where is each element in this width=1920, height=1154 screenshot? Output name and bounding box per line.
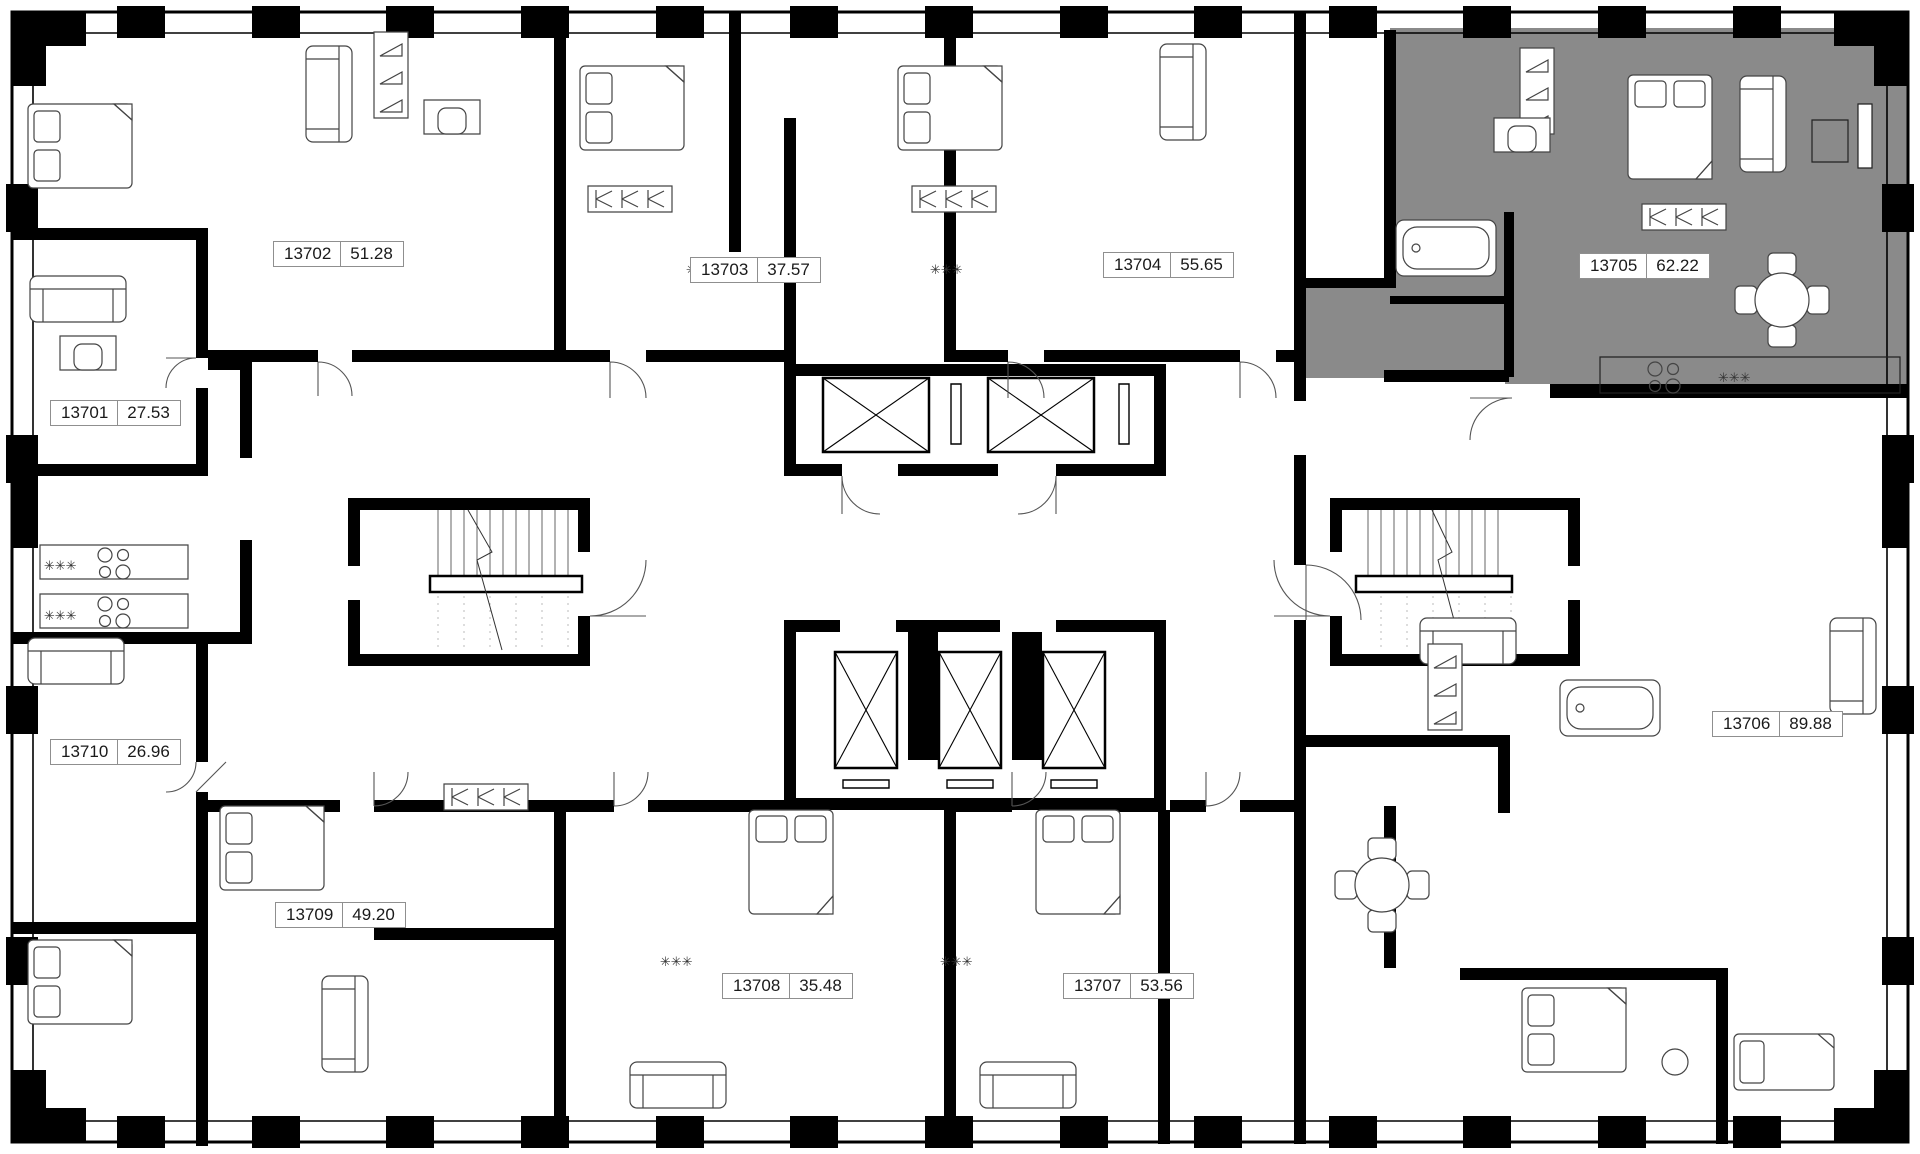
- stairwell-left: [348, 498, 590, 666]
- apartment-area: 89.88: [1780, 712, 1842, 736]
- svg-text:✳✳✳: ✳✳✳: [940, 955, 973, 970]
- elevator-bank-bottom: [784, 620, 1166, 810]
- svg-text:✳✳✳: ✳✳✳: [44, 559, 77, 574]
- apartment-area: 37.57: [758, 258, 820, 282]
- apartment-area: 35.48: [790, 974, 852, 998]
- apartment-label-13709[interactable]: 13709 49.20: [275, 902, 406, 928]
- elevator-counterweight: [843, 780, 1097, 788]
- floor-plan-drawing: ✳✳✳ ✳✳✳ ✳✳✳ ✳✳✳ ✳✳✳ ✳✳✳ ✳✳✳: [0, 0, 1920, 1154]
- apartment-area: 27.53: [118, 401, 180, 425]
- apartment-label-13706[interactable]: 13706 89.88: [1712, 711, 1843, 737]
- apartment-number: 13701: [51, 401, 118, 425]
- apartment-number: 13703: [691, 258, 758, 282]
- apartment-number: 13709: [276, 903, 343, 927]
- apartment-label-13701[interactable]: 13701 27.53: [50, 400, 181, 426]
- apartment-label-13710[interactable]: 13710 26.96: [50, 739, 181, 765]
- apartment-label-13703[interactable]: 13703 37.57: [690, 257, 821, 283]
- apartment-area: 62.22: [1647, 254, 1709, 278]
- apartment-area: 26.96: [118, 740, 180, 764]
- apartment-label-13707[interactable]: 13707 53.56: [1063, 973, 1194, 999]
- apartment-label-13705[interactable]: 13705 62.22: [1579, 253, 1710, 279]
- apartment-label-13708[interactable]: 13708 35.48: [722, 973, 853, 999]
- apartment-label-13704[interactable]: 13704 55.65: [1103, 252, 1234, 278]
- apartment-number: 13708: [723, 974, 790, 998]
- apartment-number: 13706: [1713, 712, 1780, 736]
- floor-plan-stage: ✳✳✳ ✳✳✳ ✳✳✳ ✳✳✳ ✳✳✳ ✳✳✳ ✳✳✳ 13701 27.53 …: [0, 0, 1920, 1154]
- stair-landing: [1356, 576, 1512, 592]
- svg-text:✳✳✳: ✳✳✳: [1718, 371, 1751, 386]
- stair-landing: [430, 576, 582, 592]
- apartment-area: 49.20: [343, 903, 405, 927]
- apartment-label-13702[interactable]: 13702 51.28: [273, 241, 404, 267]
- svg-text:✳✳✳: ✳✳✳: [660, 955, 693, 970]
- apartment-area: 53.56: [1131, 974, 1193, 998]
- apartment-area: 51.28: [341, 242, 403, 266]
- apartment-number: 13704: [1104, 253, 1171, 277]
- svg-text:✳✳✳: ✳✳✳: [44, 609, 77, 624]
- apartment-area: 55.65: [1171, 253, 1233, 277]
- apartment-number: 13710: [51, 740, 118, 764]
- apartment-number: 13707: [1064, 974, 1131, 998]
- svg-text:✳✳✳: ✳✳✳: [930, 263, 963, 278]
- elevator-bank-top: [784, 364, 1166, 476]
- apartment-number: 13705: [1580, 254, 1647, 278]
- apartment-number: 13702: [274, 242, 341, 266]
